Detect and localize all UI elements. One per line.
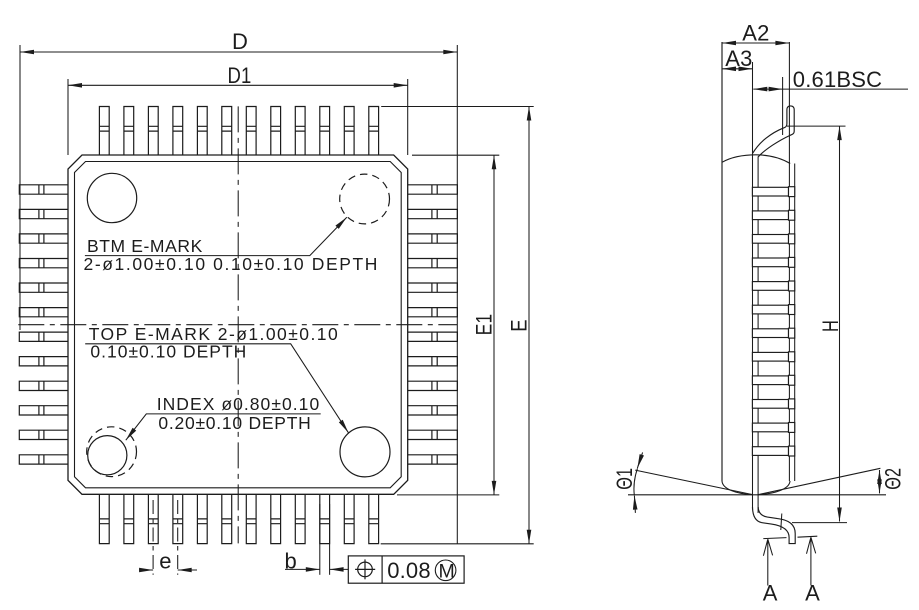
svg-text:0.08: 0.08 (387, 558, 431, 583)
svg-text:A3: A3 (725, 46, 752, 71)
svg-text:A2: A2 (742, 21, 769, 46)
svg-text:0.20±0.10 DEPTH: 0.20±0.10 DEPTH (158, 413, 311, 433)
svg-text:A: A (763, 581, 778, 606)
svg-text:e: e (159, 549, 171, 574)
svg-text:0.61BSC: 0.61BSC (793, 67, 882, 92)
svg-text:0.10±0.10 DEPTH: 0.10±0.10 DEPTH (90, 341, 247, 361)
svg-text:M: M (439, 560, 455, 582)
svg-text:H: H (818, 320, 843, 332)
svg-text:A: A (805, 581, 820, 606)
svg-text:2-ø1.00±0.10 0.10±0.10 DEPTH: 2-ø1.00±0.10 0.10±0.10 DEPTH (84, 254, 380, 274)
svg-text:E1: E1 (472, 314, 497, 336)
svg-text:INDEX ø0.80±0.10: INDEX ø0.80±0.10 (157, 394, 321, 414)
svg-text:D1: D1 (228, 63, 252, 88)
svg-text:D: D (232, 29, 248, 54)
svg-text:b: b (285, 549, 297, 574)
svg-text:Θ2: Θ2 (881, 468, 906, 490)
svg-text:E: E (507, 319, 532, 332)
svg-text:Θ1: Θ1 (612, 468, 637, 490)
